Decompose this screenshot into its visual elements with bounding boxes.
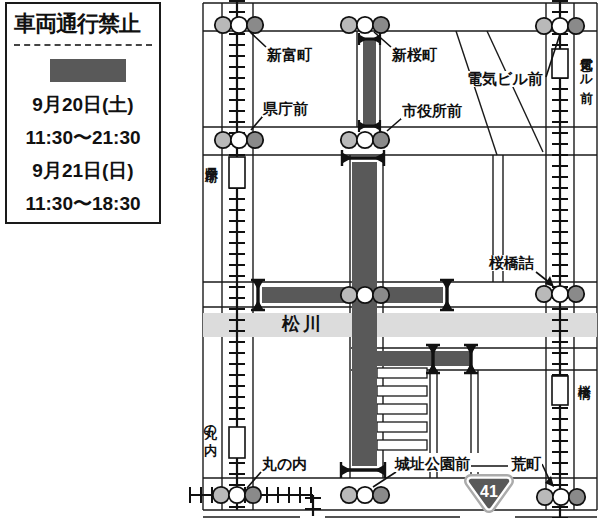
closure-date-1: 9月20日(土) — [7, 88, 159, 121]
closed-horizontal-lower — [377, 351, 471, 366]
tram-stop-shintomicho — [215, 17, 263, 33]
river-matsukawa — [203, 313, 597, 337]
closure-color-swatch — [50, 59, 126, 82]
route-41-number: 41 — [471, 483, 507, 501]
legend-divider — [14, 44, 152, 46]
street-label-marunouchi-vertical: 丸の内 — [204, 416, 217, 434]
label-kencho-mae: 県庁前 — [262, 101, 309, 117]
tram-stop-denkibiru-mae — [536, 18, 584, 34]
label-river-matsukawa: 松川 — [281, 315, 325, 334]
label-shinsakuramachi: 新桜町 — [391, 47, 438, 63]
tram-stop-kencho-mae — [215, 132, 263, 148]
label-marunouchi: 丸の内 — [261, 456, 308, 472]
closed-upper-vertical — [363, 40, 376, 125]
label-shiyakusho-mae: 市役所前 — [401, 103, 463, 119]
closure-date-2: 9月21日(日) — [7, 154, 159, 187]
closure-time-1: 11:30〜21:30 — [7, 121, 159, 154]
tram-stop-shinsakuramachi — [341, 17, 389, 33]
label-sakurabashizume: 桜橋詰 — [488, 255, 535, 271]
road-closure-notice: 車両通行禁止 9月20日(土) 11:30〜21:30 9月21日(日) 11:… — [0, 0, 600, 518]
tram-stop-marunouchi — [213, 487, 261, 503]
label-shintomicho: 新富町 — [266, 47, 313, 63]
label-aramachi: 荒町 — [510, 456, 542, 472]
label-joshikoen-mae: 城址公園前 — [394, 456, 471, 472]
tram-stop-joshikoen-mae — [341, 487, 389, 503]
legend-title: 車両通行禁止 — [14, 9, 153, 39]
legend-box: 車両通行禁止 9月20日(土) 11:30〜21:30 9月21日(日) 11:… — [5, 2, 161, 224]
street-label-kencho-mae-vertical: 県庁前 — [205, 157, 218, 160]
tram-stop-sakurabashizume — [536, 286, 584, 302]
street-label-sakurabashi-vertical: 桜橋 — [578, 374, 591, 376]
tram-stop-center-crossing — [341, 287, 389, 303]
closed-main-vertical — [352, 162, 377, 466]
label-denkibiru-mae: 電気ビル前 — [466, 71, 544, 87]
street-label-denkibiru-mae-vertical: 電気ビル前 — [580, 48, 593, 82]
tram-stop-aramachi — [537, 489, 585, 505]
closure-time-2: 11:30〜18:30 — [7, 187, 159, 220]
tram-stop-shiyakusho-mae — [341, 132, 389, 148]
